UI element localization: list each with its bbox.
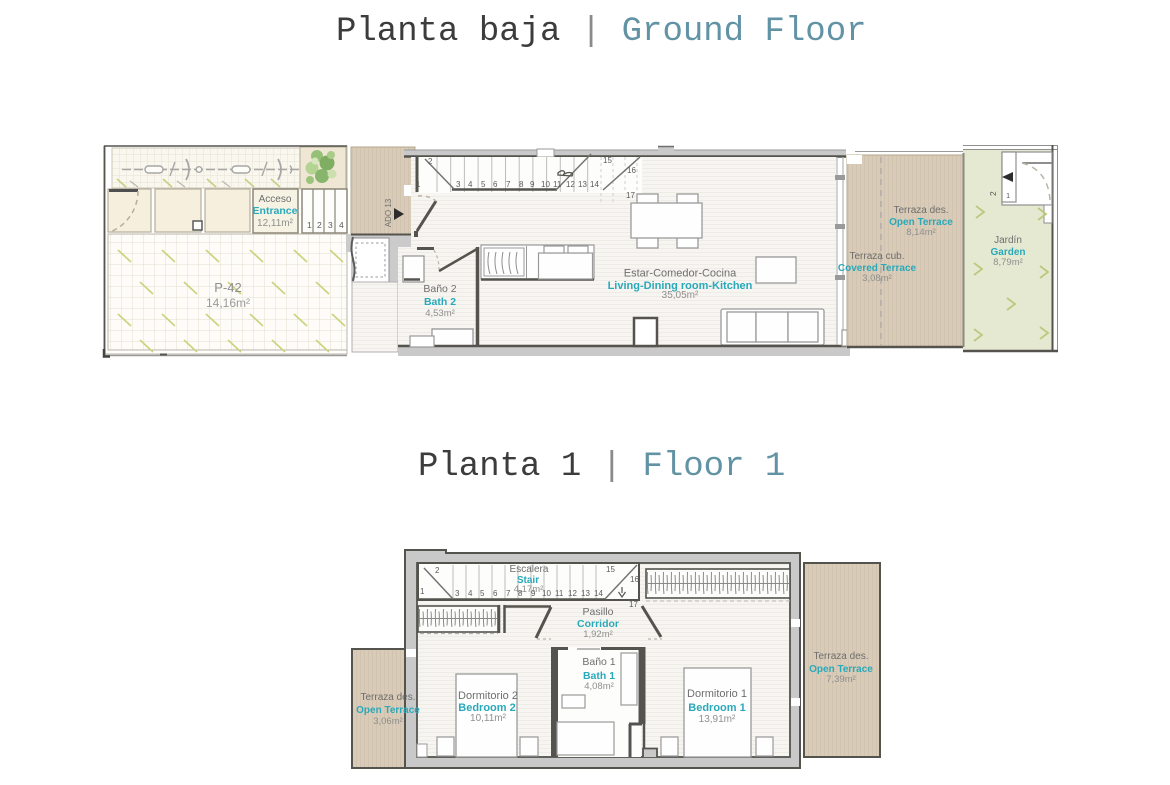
- svg-text:17: 17: [629, 600, 638, 609]
- svg-text:13: 13: [578, 180, 587, 189]
- svg-text:4: 4: [468, 589, 473, 598]
- svg-text:5: 5: [481, 180, 486, 189]
- svg-text:Jardín: Jardín: [994, 235, 1022, 246]
- svg-text:Escalera: Escalera: [510, 564, 549, 575]
- svg-text:3: 3: [328, 220, 333, 230]
- svg-text:1: 1: [1006, 191, 1010, 200]
- svg-text:3,08m²: 3,08m²: [862, 273, 892, 284]
- svg-text:12: 12: [566, 180, 575, 189]
- svg-text:1: 1: [307, 220, 312, 230]
- svg-text:15: 15: [606, 565, 615, 574]
- svg-text:12,11m²: 12,11m²: [257, 218, 294, 229]
- svg-text:4,17m²: 4,17m²: [514, 584, 544, 595]
- svg-text:2: 2: [988, 191, 998, 196]
- svg-text:35,05m²: 35,05m²: [662, 290, 699, 301]
- svg-text:11: 11: [555, 589, 564, 598]
- svg-text:7: 7: [506, 589, 511, 598]
- svg-text:7,39m²: 7,39m²: [826, 674, 856, 685]
- svg-text:7: 7: [506, 180, 511, 189]
- svg-text:2: 2: [435, 566, 440, 575]
- svg-text:4,53m²: 4,53m²: [425, 308, 455, 319]
- svg-text:13,91m²: 13,91m²: [699, 714, 736, 725]
- svg-text:Terraza des.: Terraza des.: [813, 651, 868, 662]
- svg-text:Dormitorio 1: Dormitorio 1: [687, 688, 747, 700]
- svg-text:ADO 13: ADO 13: [384, 198, 393, 227]
- svg-text:12: 12: [568, 589, 577, 598]
- svg-text:9: 9: [530, 180, 535, 189]
- svg-text:11: 11: [553, 180, 562, 189]
- svg-text:Bedroom 1: Bedroom 1: [688, 702, 745, 714]
- svg-text:10,11m²: 10,11m²: [470, 713, 507, 724]
- svg-text:17: 17: [626, 191, 635, 200]
- svg-text:Terraza cub.: Terraza cub.: [849, 251, 904, 262]
- svg-text:4,08m²: 4,08m²: [584, 681, 614, 692]
- svg-text:2: 2: [428, 157, 433, 166]
- svg-text:16: 16: [630, 575, 639, 584]
- svg-text:1,92m²: 1,92m²: [583, 629, 613, 640]
- svg-text:Bath 2: Bath 2: [424, 296, 456, 308]
- svg-text:3: 3: [455, 589, 460, 598]
- svg-text:3,06m²: 3,06m²: [373, 716, 403, 727]
- svg-text:Entrance: Entrance: [253, 205, 298, 217]
- svg-text:14: 14: [590, 180, 599, 189]
- svg-text:13: 13: [581, 589, 590, 598]
- svg-text:Baño 1: Baño 1: [582, 656, 615, 668]
- svg-text:Terraza des.: Terraza des.: [893, 205, 948, 216]
- svg-text:Planta baja | Ground Floor: Planta baja | Ground Floor: [336, 13, 867, 51]
- svg-text:4: 4: [339, 220, 344, 230]
- svg-text:Terraza des.: Terraza des.: [360, 692, 415, 703]
- svg-text:14: 14: [594, 589, 603, 598]
- svg-text:3: 3: [456, 180, 461, 189]
- svg-text:6: 6: [493, 589, 498, 598]
- svg-text:8,79m²: 8,79m²: [993, 257, 1023, 268]
- svg-text:Baño 2: Baño 2: [423, 283, 456, 295]
- svg-text:1: 1: [420, 587, 425, 596]
- svg-text:8: 8: [519, 180, 524, 189]
- svg-text:6: 6: [493, 180, 498, 189]
- svg-text:Open Terrace: Open Terrace: [356, 705, 420, 716]
- svg-text:4: 4: [468, 180, 473, 189]
- svg-text:Dormitorio 2: Dormitorio 2: [458, 690, 518, 702]
- svg-text:5: 5: [480, 589, 485, 598]
- svg-text:10: 10: [541, 180, 550, 189]
- svg-text:10: 10: [542, 589, 551, 598]
- svg-text:P-42: P-42: [214, 280, 241, 295]
- svg-text:8,14m²: 8,14m²: [906, 227, 936, 238]
- svg-text:Planta 1 | Floor 1: Planta 1 | Floor 1: [418, 448, 785, 486]
- svg-text:2: 2: [317, 220, 322, 230]
- svg-text:Pasillo: Pasillo: [583, 606, 614, 618]
- svg-text:15: 15: [603, 156, 612, 165]
- svg-text:Estar-Comedor-Cocina: Estar-Comedor-Cocina: [624, 268, 737, 280]
- svg-text:16: 16: [627, 166, 636, 175]
- svg-text:Acceso: Acceso: [259, 194, 292, 205]
- svg-text:14,16m²: 14,16m²: [206, 296, 250, 310]
